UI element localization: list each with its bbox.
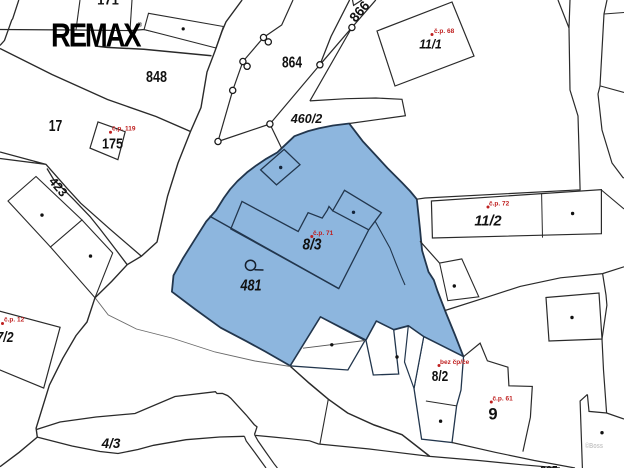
svg-text:č.p. 71: č.p. 71 [313, 230, 334, 237]
svg-text:11/1: 11/1 [419, 37, 442, 52]
svg-text:7/2: 7/2 [0, 329, 14, 346]
svg-text:171: 171 [97, 0, 119, 8]
svg-text:č.p. 68: č.p. 68 [434, 28, 455, 35]
svg-text:11/2: 11/2 [474, 214, 501, 230]
svg-text:225: 225 [540, 463, 558, 468]
svg-text:864: 864 [282, 55, 302, 72]
svg-text:460/2: 460/2 [290, 112, 322, 126]
svg-text:č.p. 119: č.p. 119 [112, 126, 136, 133]
svg-text:4/3: 4/3 [101, 436, 121, 451]
svg-text:©Boss: ©Boss [585, 441, 603, 450]
svg-text:®: ® [138, 22, 143, 29]
svg-text:č.p. 61: č.p. 61 [493, 396, 514, 403]
svg-text:8/2: 8/2 [432, 369, 449, 385]
svg-text:481: 481 [240, 278, 262, 295]
svg-text:REMAX: REMAX [51, 18, 141, 54]
svg-text:bez čp/če: bez čp/če [440, 359, 470, 366]
svg-text:8/3: 8/3 [303, 237, 322, 254]
svg-text:175: 175 [102, 137, 123, 153]
svg-text:9: 9 [488, 406, 497, 424]
svg-text:17: 17 [49, 118, 63, 135]
svg-text:č.p. 72: č.p. 72 [489, 201, 510, 208]
svg-text:č.p. 12: č.p. 12 [4, 317, 25, 324]
svg-text:848: 848 [146, 69, 167, 86]
